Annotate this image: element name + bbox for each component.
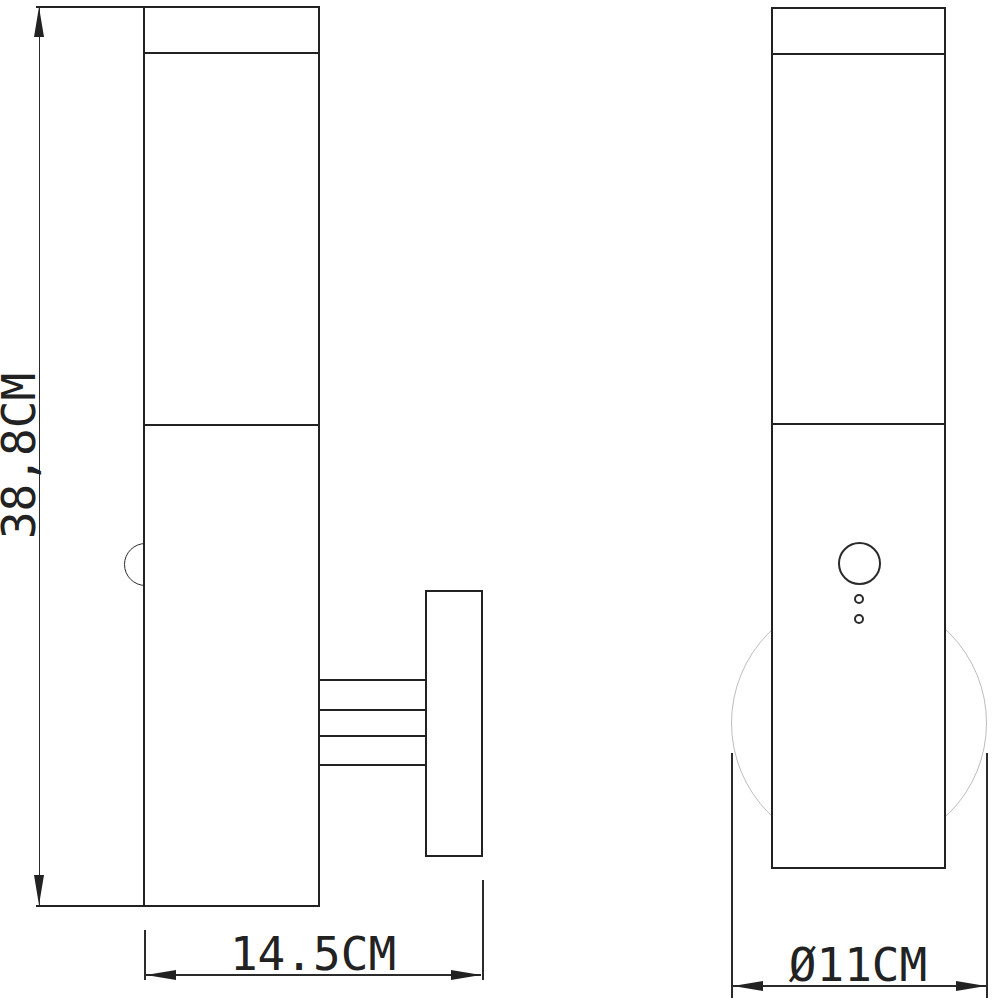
width-dimension-label: 14.5CM	[203, 933, 423, 975]
lamp-body-front	[771, 7, 946, 869]
diffuser-divider-line	[145, 424, 318, 426]
dimension-arrow-right-icon	[451, 970, 481, 980]
diameter-extension-line-left	[731, 753, 733, 998]
indicator-dot	[854, 614, 864, 624]
width-extension-line-right	[482, 880, 484, 980]
mounting-arm-line	[319, 709, 427, 711]
mounting-arm-line	[319, 679, 427, 681]
dimension-arrow-up-icon	[34, 7, 44, 37]
mounting-arm-line	[319, 735, 427, 737]
diameter-dimension-label: Ø11CM	[748, 944, 968, 986]
lamp-body-side	[143, 6, 320, 907]
lamp-dimension-drawing: 38,8CM 14.5CM Ø11CM	[0, 0, 1000, 1000]
diameter-extension-line-right	[986, 753, 988, 998]
bottom-extension-line	[36, 905, 145, 907]
top-cap-seam-line	[145, 52, 318, 54]
dimension-arrow-left-icon	[146, 970, 176, 980]
diffuser-divider-line-front	[773, 423, 944, 425]
wall-mounting-plate	[425, 590, 483, 857]
top-cap-seam-line-front	[773, 53, 944, 55]
top-extension-line	[36, 6, 145, 8]
mounting-arm-line	[319, 764, 427, 766]
indicator-dot	[854, 594, 864, 604]
dimension-arrow-down-icon	[34, 875, 44, 905]
height-dimension-label: 38,8CM	[0, 346, 40, 566]
motion-sensor-lens	[838, 542, 881, 585]
